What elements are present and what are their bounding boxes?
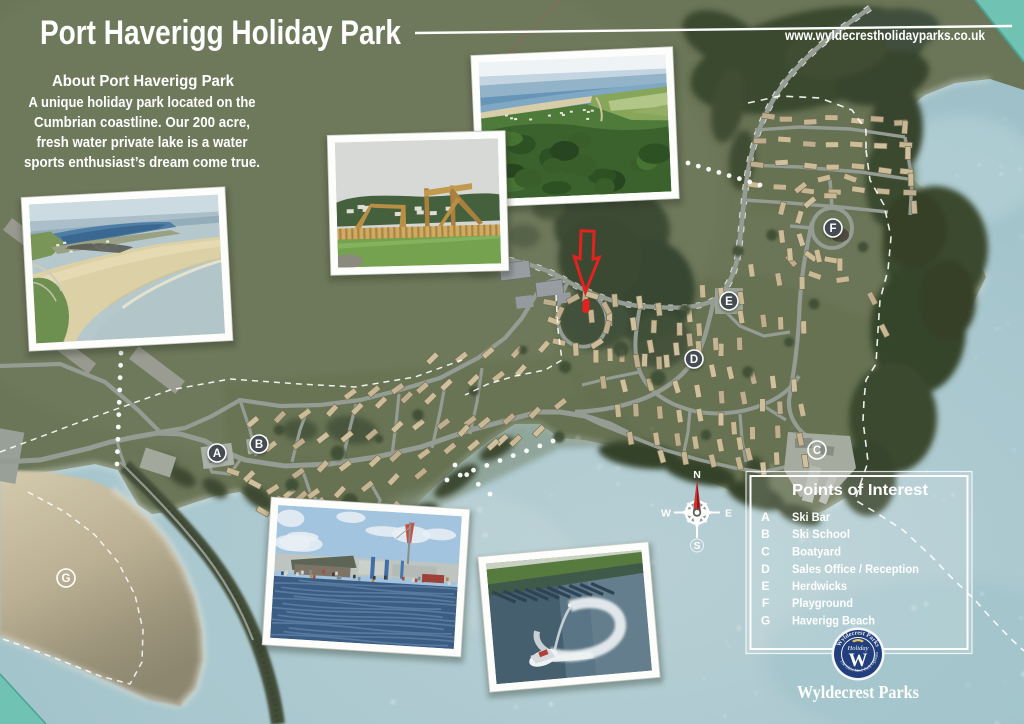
svg-text:F: F <box>829 223 836 235</box>
svg-text:Playground: Playground <box>792 596 853 610</box>
svg-text:A unique holiday park located: A unique holiday park located on the <box>29 95 256 111</box>
svg-text:Wyldecrest Parks: Wyldecrest Parks <box>797 682 919 702</box>
svg-text:Ski School: Ski School <box>792 527 850 541</box>
svg-text:sports enthusiast’s dream come: sports enthusiast’s dream come true. <box>24 155 260 171</box>
svg-text:G: G <box>62 573 71 585</box>
svg-text:N: N <box>693 469 701 481</box>
svg-text:F: F <box>762 596 769 610</box>
svg-text:A: A <box>213 448 221 460</box>
svg-text:Herdwicks: Herdwicks <box>792 579 847 593</box>
svg-text:W: W <box>849 650 868 671</box>
svg-text:E: E <box>725 508 732 520</box>
svg-text:B: B <box>255 439 263 451</box>
svg-text:Boatyard: Boatyard <box>792 545 841 559</box>
svg-text:A: A <box>761 510 770 524</box>
svg-text:www.wyldecrestholidayparks.co.: www.wyldecrestholidayparks.co.uk <box>784 27 985 43</box>
svg-text:D: D <box>761 562 770 576</box>
svg-text:Cumbrian coastline. Our 200 ac: Cumbrian coastline. Our 200 acre, <box>34 115 250 131</box>
svg-text:Ski Bar: Ski Bar <box>792 510 830 524</box>
svg-text:Sales Office / Reception: Sales Office / Reception <box>792 562 919 576</box>
svg-text:C: C <box>813 445 821 457</box>
svg-text:Port Haverigg Holiday Park: Port Haverigg Holiday Park <box>40 14 401 52</box>
svg-text:C: C <box>761 545 770 559</box>
svg-text:About Port Haverigg Park: About Port Haverigg Park <box>52 73 234 90</box>
svg-text:Points of Interest: Points of Interest <box>792 482 928 499</box>
svg-text:W: W <box>661 508 671 520</box>
svg-text:Haverigg Beach: Haverigg Beach <box>792 614 875 628</box>
svg-text:B: B <box>761 527 770 541</box>
svg-text:E: E <box>725 296 733 308</box>
svg-text:S: S <box>693 540 700 552</box>
svg-text:E: E <box>761 579 769 593</box>
svg-text:D: D <box>690 354 698 366</box>
svg-text:fresh water private lake is a: fresh water private lake is a water <box>37 135 248 151</box>
svg-text:G: G <box>761 614 770 628</box>
